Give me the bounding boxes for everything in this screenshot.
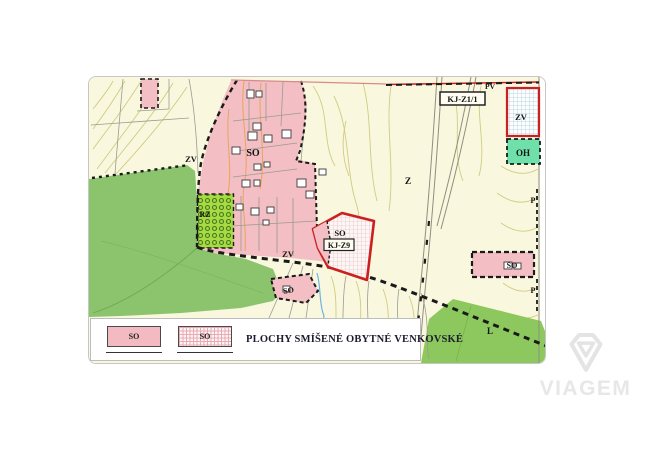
label-so-south: SO [283, 285, 295, 296]
label-p-upper: P [531, 196, 536, 205]
label-so-kj-z9: SO [334, 228, 346, 238]
label-p-lower: P [531, 286, 536, 295]
label-so-village: SO [246, 148, 260, 159]
legend-swatch-so-solid: SO [107, 326, 161, 347]
label-kj-z1-1: KJ-Z1/1 [447, 94, 477, 104]
label-l: L [487, 326, 493, 336]
gem-icon [557, 330, 615, 376]
label-kj-z9: KJ-Z9 [328, 241, 350, 250]
map-legend: SO SO PLOCHY SMÍŠENÉ OBYTNÉ VENKOVSKÉ [90, 318, 421, 361]
watermark-text: VIAGEM [540, 377, 632, 401]
page: { "map": { "labels": [ {"id":"so-village… [0, 0, 663, 468]
label-z: Z [405, 177, 411, 187]
so-east-zone [472, 252, 534, 277]
label-pv: PV [485, 82, 496, 91]
label-oh: OH [516, 148, 530, 158]
legend-title: PLOCHY SMÍŠENÉ OBYTNÉ VENKOVSKÉ [246, 334, 463, 345]
label-so-east: SO [507, 261, 518, 270]
rz-orchard-zone [198, 194, 234, 248]
legend-underline [106, 352, 162, 353]
legend-swatch-so-hatched: SO [178, 326, 232, 347]
label-zv-upper: ZV [185, 154, 198, 164]
legend-item-so-solid: SO [106, 326, 162, 353]
label-zv-northeast: ZV [515, 112, 528, 122]
label-zv-lower: ZV [282, 249, 295, 259]
viagem-watermark: VIAGEM [528, 330, 643, 404]
label-rz: RZ [199, 210, 210, 219]
legend-item-so-hatched: SO [177, 326, 233, 353]
legend-underline [177, 352, 233, 353]
small-pink-parcel [141, 79, 158, 108]
